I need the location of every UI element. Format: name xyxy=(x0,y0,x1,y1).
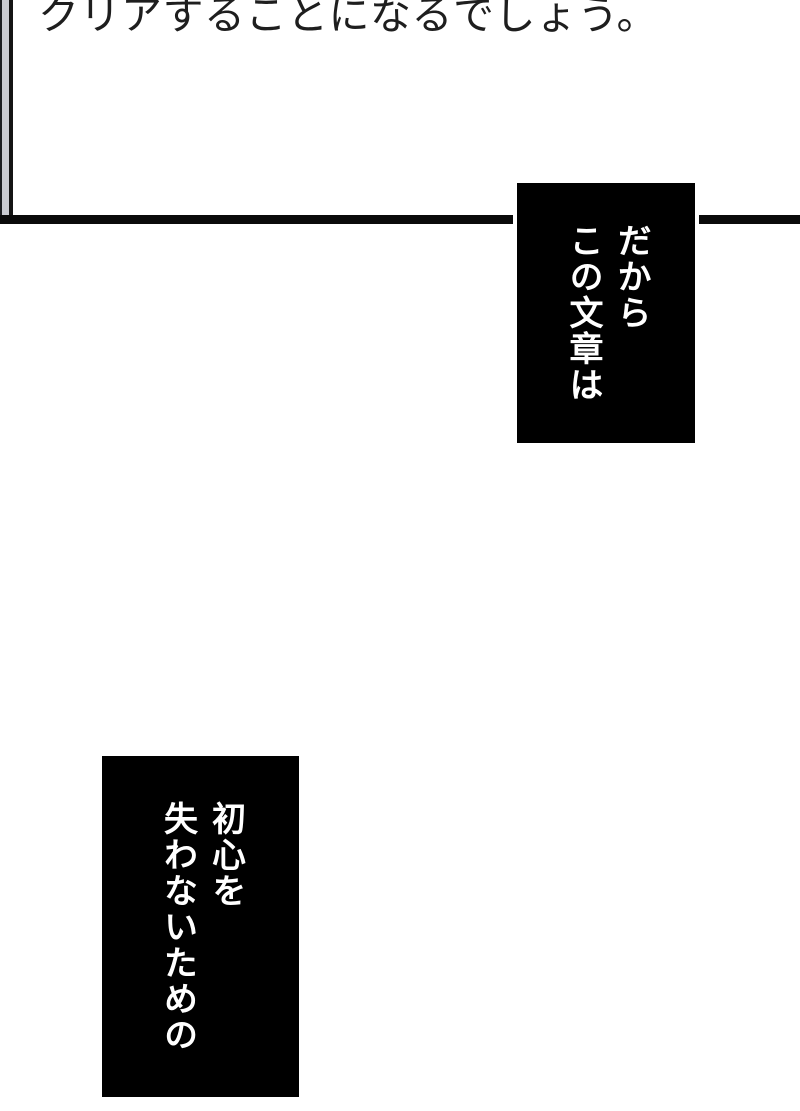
top-panel-left-border xyxy=(9,0,13,224)
caption-box-bottom-left: 初心を 失わないための xyxy=(102,756,299,1097)
caption-top-right-text: だから この文章は xyxy=(558,223,654,403)
caption-bottom-left-text: 初心を 失わないための xyxy=(153,801,249,1053)
manga-page: クリアすることになるでしょう。 だから この文章は 初心を 失わないための xyxy=(0,0,800,1111)
caption-top-right-column-2: この文章は xyxy=(558,223,606,403)
top-panel-narration-text: クリアすることになるでしょう。 xyxy=(38,0,658,40)
caption-bottom-left-column-1: 初心を xyxy=(201,801,249,1053)
caption-top-right-column-1: だから xyxy=(606,223,654,403)
caption-box-top-right: だから この文章は xyxy=(517,183,695,443)
page-left-gutter xyxy=(2,0,9,224)
caption-bottom-left-column-2: 失わないための xyxy=(153,801,201,1053)
